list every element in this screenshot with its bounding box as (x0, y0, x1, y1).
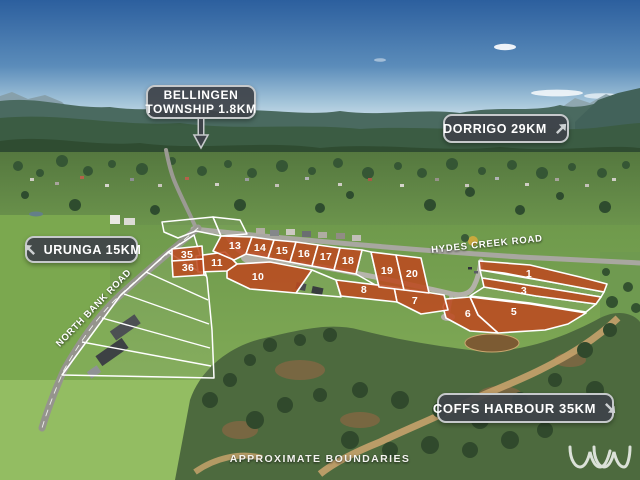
lot-label-19: 19 (381, 265, 393, 277)
pointer-down-icon (189, 117, 213, 153)
bellingen-township-sign: BELLINGEN TOWNSHIP 1.8KM (146, 85, 256, 119)
lot-label-16: 16 (298, 248, 310, 260)
lot-label-36: 36 (182, 262, 194, 274)
bellingen-sign-line2: TOWNSHIP 1.8KM (145, 102, 256, 116)
lot-label-15: 15 (276, 245, 288, 257)
aerial-subdivision-photo: 135678101113141516171819203536 BELLINGEN… (0, 0, 640, 480)
approximate-boundaries-note: APPROXIMATE BOUNDARIES (0, 453, 640, 465)
bellingen-sign-line1: BELLINGEN (164, 88, 239, 102)
lot-label-8: 8 (361, 284, 367, 296)
lot-label-20: 20 (406, 268, 418, 280)
lot-label-3: 3 (521, 285, 527, 297)
lot-label-17: 17 (320, 251, 332, 263)
lot-polygon-10 (227, 262, 312, 293)
urunga-sign: URUNGA 15KM (25, 236, 138, 263)
lot-label-13: 13 (229, 240, 241, 252)
dorrigo-sign-label: DORRIGO 29KM (443, 122, 547, 136)
coffs-harbour-sign: COFFS HARBOUR 35KM (437, 393, 614, 423)
dorrigo-sign: DORRIGO 29KM (443, 114, 569, 143)
lot-label-11: 11 (211, 257, 223, 269)
urunga-sign-label: URUNGA 15KM (44, 243, 142, 257)
lot-label-10: 10 (252, 271, 264, 283)
lot-label-7: 7 (412, 295, 418, 307)
lot-label-5: 5 (511, 306, 517, 318)
lot-label-6: 6 (465, 308, 471, 320)
lot-label-1: 1 (526, 268, 532, 280)
lot-label-14: 14 (254, 242, 266, 254)
lot-label-18: 18 (342, 255, 354, 267)
brand-logo (564, 439, 634, 477)
coffs-harbour-sign-label: COFFS HARBOUR 35KM (433, 401, 596, 416)
